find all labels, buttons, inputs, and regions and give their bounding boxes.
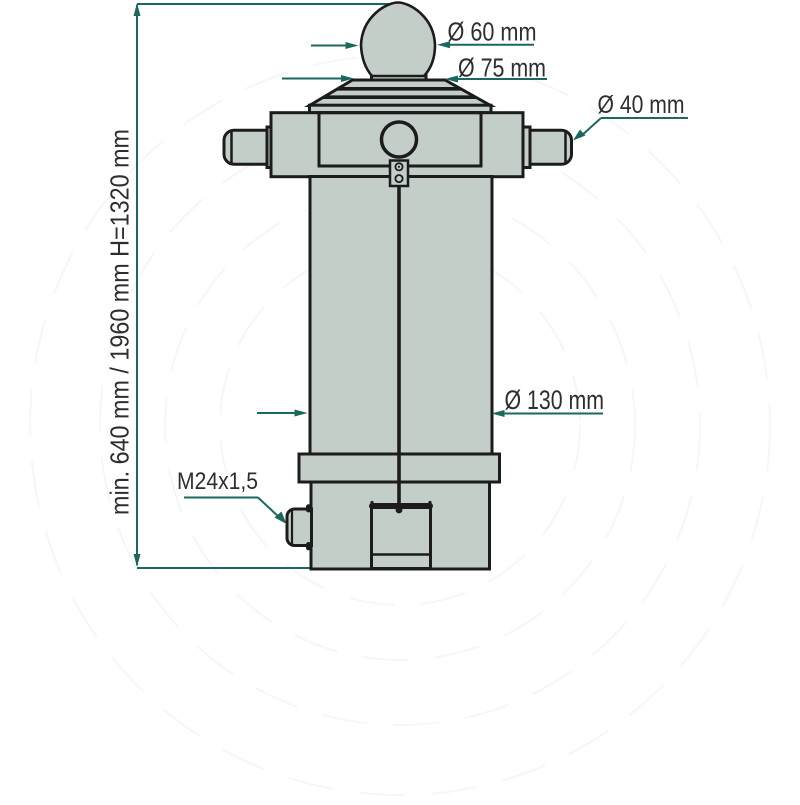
- svg-text:Ø 40 mm: Ø 40 mm: [598, 91, 685, 119]
- svg-text:Ø 75 mm: Ø 75 mm: [458, 53, 546, 83]
- svg-text:min. 640 mm / 1960 mm H=1320 m: min. 640 mm / 1960 mm H=1320 mm: [105, 129, 135, 515]
- svg-text:M24x1,5: M24x1,5: [177, 468, 258, 495]
- svg-text:Ø 60 mm: Ø 60 mm: [448, 17, 537, 47]
- svg-text:Ø 130 mm: Ø 130 mm: [505, 385, 605, 415]
